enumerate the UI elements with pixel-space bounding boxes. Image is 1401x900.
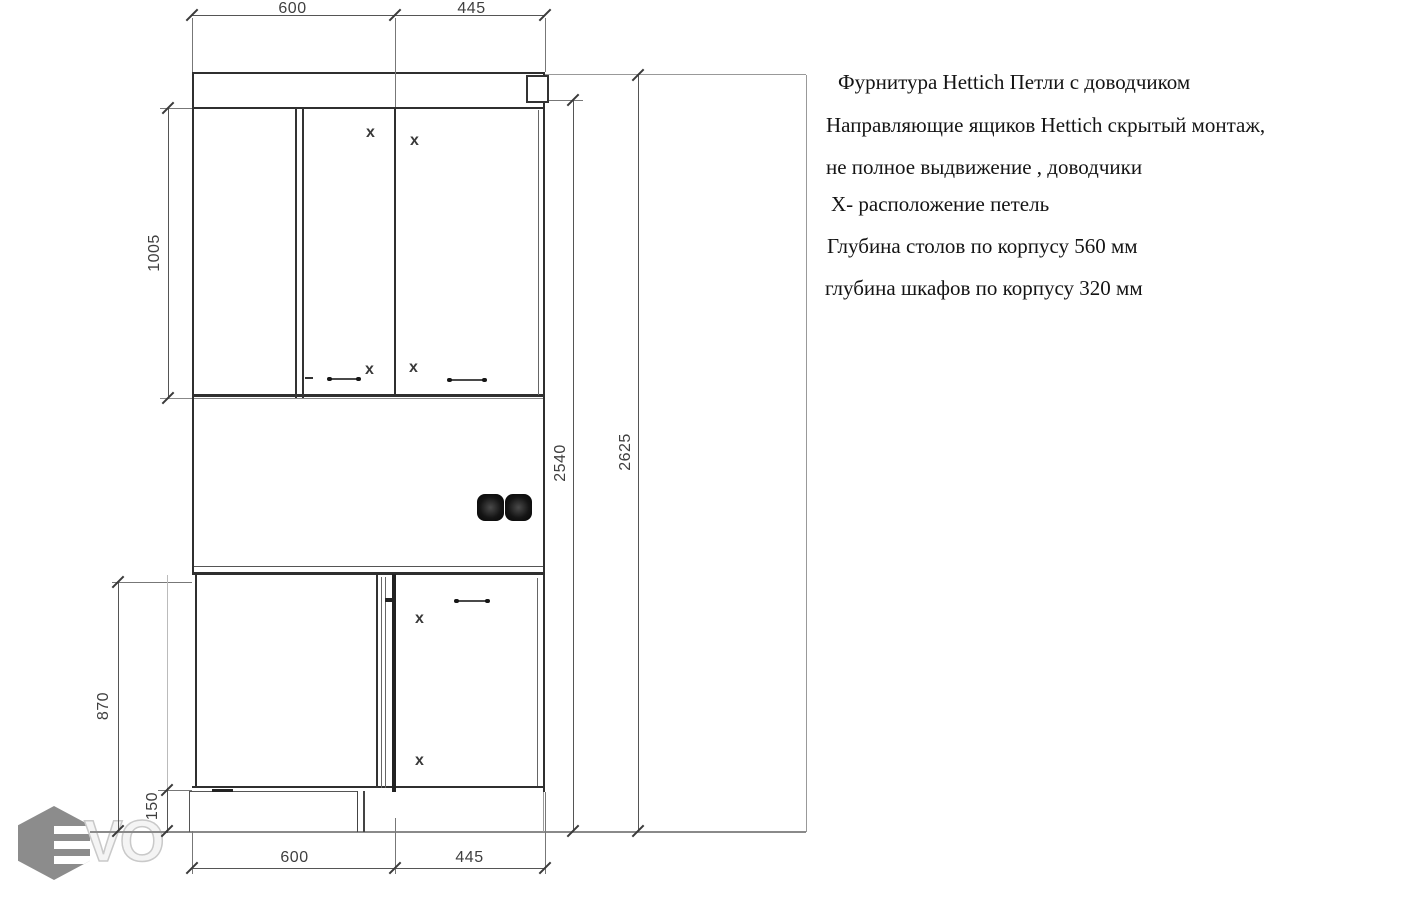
upper-panel-double-line xyxy=(295,108,297,398)
note-line: не полное выдвижение , доводчики xyxy=(826,155,1142,180)
dim-label-bottom-600: 600 xyxy=(272,849,317,867)
upper-doors-top-line xyxy=(192,107,545,109)
door-handle-icon xyxy=(328,378,360,380)
handle-end xyxy=(356,377,361,381)
plinth-end-double-line xyxy=(363,791,365,832)
base-cabinet-divider-line xyxy=(392,574,396,792)
dim-label-top-600: 600 xyxy=(270,0,315,18)
extension-line xyxy=(395,18,396,107)
base-right-door-edge-line xyxy=(537,578,538,786)
projection-line xyxy=(167,575,168,788)
extension-line xyxy=(545,18,546,72)
countertop-back-line xyxy=(192,566,545,567)
dim-label-870: 870 xyxy=(95,674,113,738)
dim-label-1005: 1005 xyxy=(146,221,164,285)
cornice-notch-detail xyxy=(526,75,549,103)
door-edge-detail xyxy=(305,377,313,379)
upper-panel-double-line xyxy=(302,108,304,398)
base-cabinet-left-side-line xyxy=(195,575,197,786)
dimension-line-870 xyxy=(118,582,119,831)
kitchen-elevation-drawing: VO xyxy=(0,0,1401,900)
dim-label-2540: 2540 xyxy=(552,431,570,495)
base-filler-line xyxy=(381,577,382,788)
cabinet-right-side-line xyxy=(543,72,545,792)
plinth-right-extension-line xyxy=(543,792,544,832)
hinge-position-x-icon: x xyxy=(415,611,424,627)
note-line: Глубина столов по корпусу 560 мм xyxy=(827,234,1138,259)
dimension-line-150 xyxy=(167,788,168,833)
dimension-line-2625 xyxy=(638,75,639,832)
note-line: Фурнитура Hettich Петли с доводчиком xyxy=(838,70,1190,95)
door-handle-icon xyxy=(448,379,486,381)
base-doors-bottom-line xyxy=(192,786,545,788)
door-handle-icon xyxy=(455,600,489,602)
hinge-plate-detail xyxy=(385,598,395,602)
dim-label-top-445: 445 xyxy=(449,0,494,18)
hinge-position-x-icon: x xyxy=(366,125,375,141)
wall-right-line xyxy=(806,75,807,832)
plinth-handle-icon xyxy=(212,789,233,792)
plinth-left-line xyxy=(189,791,190,832)
dimension-line-2540 xyxy=(573,100,574,832)
extension-line xyxy=(112,582,192,583)
ceiling-extension-line xyxy=(545,74,806,75)
hinge-position-x-icon: x xyxy=(415,753,424,769)
extension-line xyxy=(192,18,193,72)
note-line: Направляющие ящиков Hettich скрытый монт… xyxy=(826,113,1265,138)
plinth-end-double-line xyxy=(357,791,358,832)
dim-label-2625: 2625 xyxy=(617,420,635,484)
dimension-line-1005 xyxy=(168,108,169,398)
upper-cabinet-bottom-line xyxy=(192,394,545,397)
evo-logo-hexagon-icon xyxy=(18,806,90,880)
upper-right-door-edge-line xyxy=(538,110,539,395)
note-line: X- расположение петель xyxy=(831,192,1049,217)
cabinet-left-side-line xyxy=(192,72,194,572)
handle-end xyxy=(454,599,459,603)
double-socket-icon xyxy=(505,494,532,521)
hinge-position-x-icon: x xyxy=(409,360,418,376)
floor-line xyxy=(90,831,806,833)
handle-end xyxy=(482,378,487,382)
base-left-door-edge-line xyxy=(376,575,378,788)
cabinet-top-line xyxy=(192,72,545,74)
note-line: глубина шкафов по корпусу 320 мм xyxy=(825,276,1143,301)
handle-end xyxy=(447,378,452,382)
hinge-position-x-icon: x xyxy=(410,133,419,149)
hinge-position-x-icon: x xyxy=(365,362,374,378)
dim-label-bottom-445: 445 xyxy=(447,849,492,867)
countertop-front-line xyxy=(192,572,545,575)
handle-end xyxy=(485,599,490,603)
extension-line xyxy=(545,792,546,874)
bottom-dimension-line xyxy=(192,868,545,869)
handle-end xyxy=(327,377,332,381)
upper-doors-divider-line xyxy=(394,108,396,395)
double-socket-icon xyxy=(477,494,504,521)
dim-label-150: 150 xyxy=(144,774,162,838)
base-filler-line xyxy=(385,577,386,788)
upper-bottom-extension-line xyxy=(160,398,545,399)
